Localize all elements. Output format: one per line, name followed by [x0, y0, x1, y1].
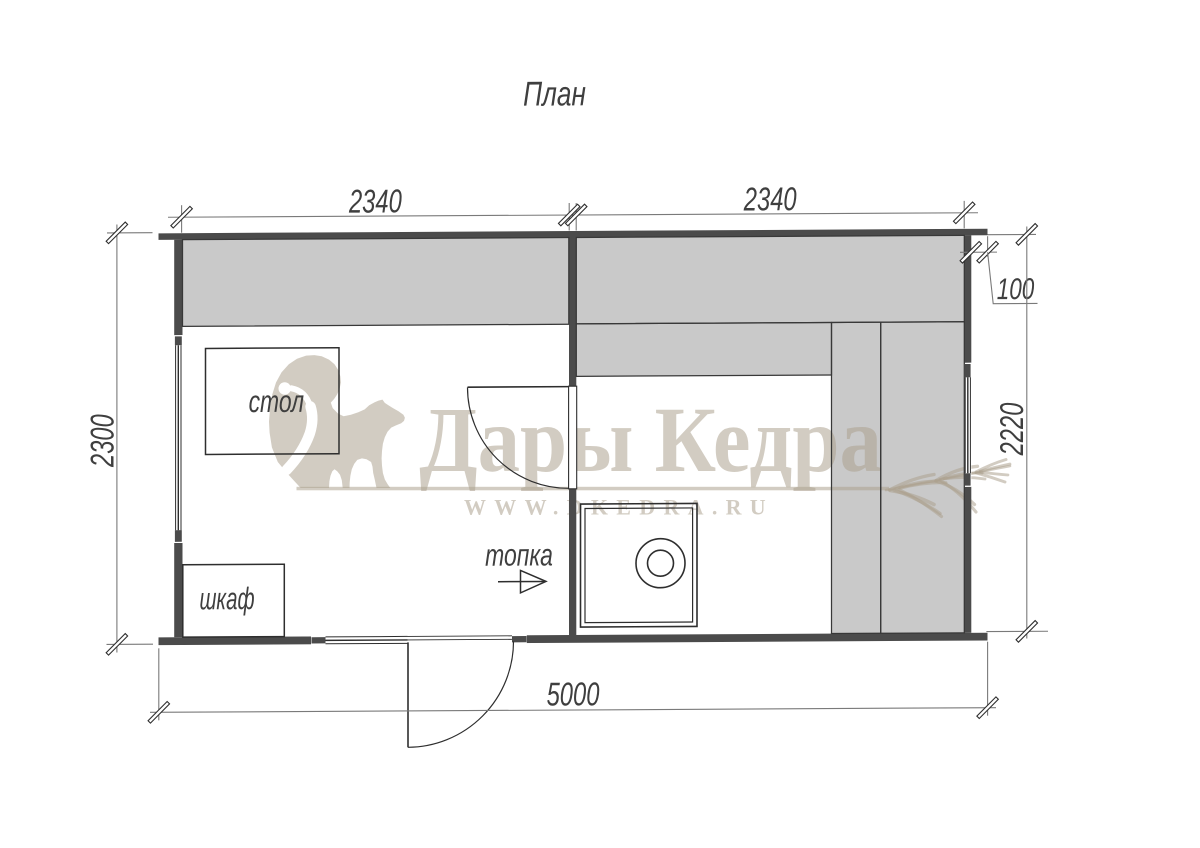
- svg-text:стол: стол: [249, 383, 304, 419]
- svg-text:топка: топка: [485, 537, 553, 573]
- svg-text:WWW.DKEDRA.RU: WWW.DKEDRA.RU: [464, 495, 774, 520]
- svg-text:100: 100: [997, 272, 1035, 306]
- svg-text:2340: 2340: [348, 184, 402, 221]
- svg-text:2220: 2220: [995, 403, 1032, 457]
- svg-text:2300: 2300: [85, 414, 122, 468]
- svg-text:5000: 5000: [547, 677, 600, 714]
- svg-text:Дары Кедра: Дары Кедра: [419, 389, 882, 491]
- svg-text:2340: 2340: [743, 181, 797, 218]
- svg-text:шкаф: шкаф: [199, 581, 254, 617]
- svg-text:План: План: [523, 75, 586, 114]
